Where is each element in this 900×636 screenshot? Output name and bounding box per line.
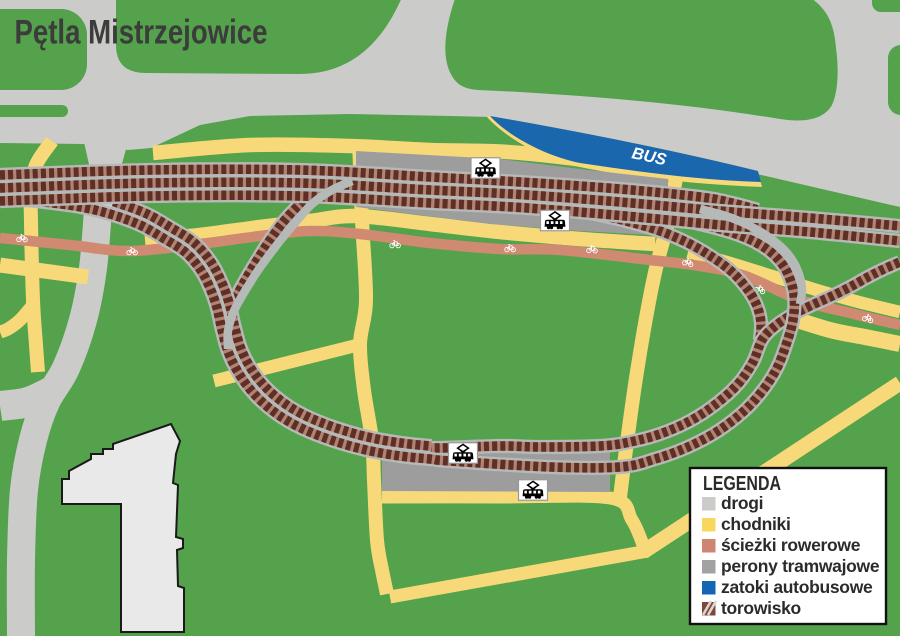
svg-text:perony tramwajowe: perony tramwajowe [721,556,880,576]
svg-text:chodniki: chodniki [721,514,791,534]
svg-text:torowisko: torowisko [721,598,801,618]
svg-text:drogi: drogi [721,493,763,513]
svg-text:zatoki autobusowe: zatoki autobusowe [721,577,873,597]
svg-text:Pętla Mistrzejowice: Pętla Mistrzejowice [15,14,268,52]
svg-text:LEGENDA: LEGENDA [703,473,781,495]
svg-text:ścieżki rowerowe: ścieżki rowerowe [721,535,861,555]
